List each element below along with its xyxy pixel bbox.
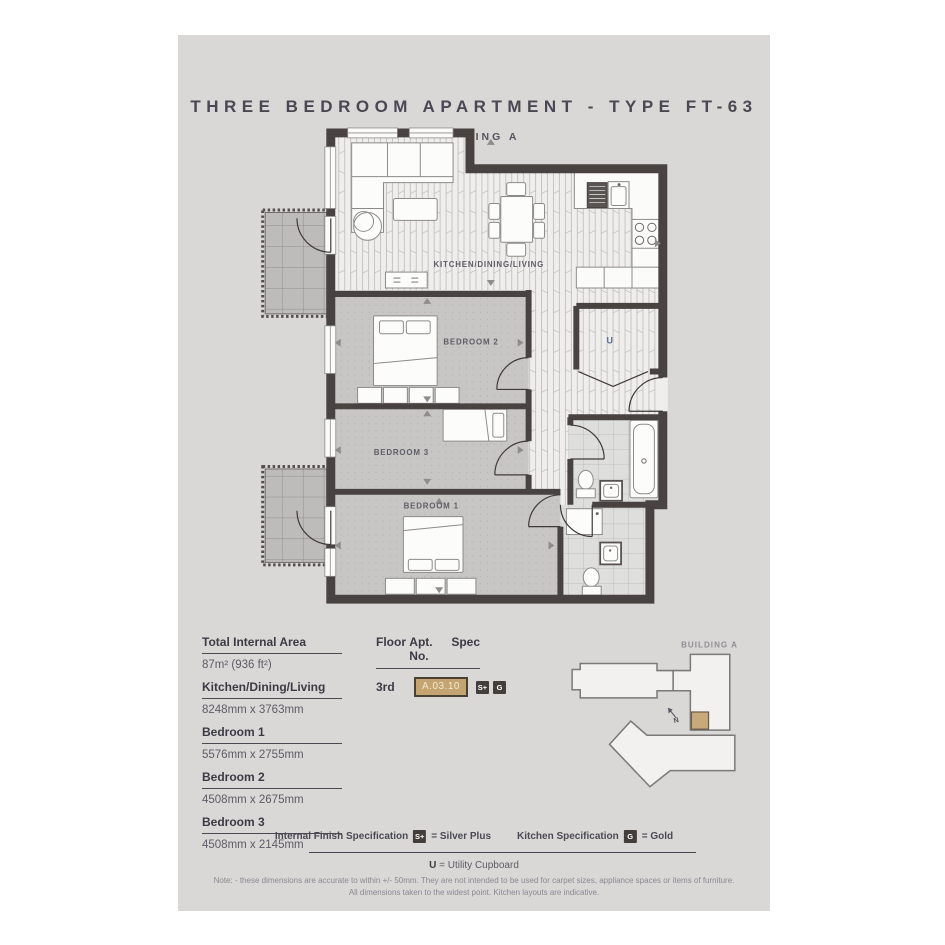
gold-badge: G: [624, 830, 637, 843]
floor-plan: KITCHEN/DINING/LIVING BEDROOM 2 BEDROOM …: [238, 121, 690, 628]
north-compass: N: [668, 708, 680, 725]
balcony-bottom: [263, 466, 330, 564]
kitchen-spec-label: Kitchen Specification: [517, 831, 619, 842]
utility-value: = Utility Cupboard: [436, 860, 519, 871]
armchair: [354, 211, 382, 240]
toilet: [578, 470, 593, 489]
floor-value: 3rd: [376, 680, 414, 694]
unit-table: Floor Apt. No. Spec 3rd A.03.10 S+ G: [376, 635, 510, 697]
dimension-value: 87m² (936 ft²): [202, 659, 342, 671]
tv-unit: [385, 272, 427, 288]
building-west-block: [572, 663, 673, 697]
dimension-row: Bedroom 1 5576mm x 2755mm: [202, 725, 342, 761]
dimension-label: Kitchen/Dining/Living: [202, 680, 342, 699]
dimension-value: 5576mm x 2755mm: [202, 749, 342, 761]
compass-n: N: [673, 717, 680, 725]
page-title: THREE BEDROOM APARTMENT - TYPE FT-63: [178, 97, 770, 117]
finish-spec-label: Internal Finish Specification: [275, 831, 408, 842]
spec-badge-gold: G: [493, 681, 506, 694]
floorplan-card: THREE BEDROOM APARTMENT - TYPE FT-63 BUI…: [178, 35, 770, 911]
legend-divider: [309, 852, 696, 853]
kitchen-spec-value: = Gold: [642, 831, 673, 842]
keyplan-buildings: [572, 654, 735, 786]
utility-legend: U = Utility Cupboard: [178, 860, 770, 871]
dimension-label: Bedroom 2: [202, 770, 342, 789]
dimension-label: Total Internal Area: [202, 635, 342, 654]
label-living: KITCHEN/DINING/LIVING: [434, 260, 545, 269]
dimensions-table: Total Internal Area 87m² (936 ft²) Kitch…: [202, 635, 342, 860]
coffee-table: [393, 199, 437, 221]
label-bedroom2: BEDROOM 2: [443, 338, 498, 347]
dimension-row: Kitchen/Dining/Living 8248mm x 3763mm: [202, 680, 342, 716]
label-utility: U: [607, 336, 614, 346]
page: THREE BEDROOM APARTMENT - TYPE FT-63 BUI…: [0, 0, 945, 945]
unit-table-row: 3rd A.03.10 S+ G: [376, 677, 510, 697]
spec-legend: Internal Finish Specification S+ = Silve…: [275, 830, 673, 843]
dimension-value: 4508mm x 2675mm: [202, 794, 342, 806]
disclaimer-note: Note: - these dimensions are accurate to…: [178, 875, 770, 898]
building-key-plan: BUILDING A N: [560, 627, 752, 799]
bedroom3-furniture: [443, 409, 507, 441]
balcony-top: [263, 210, 330, 316]
label-bedroom1: BEDROOM 1: [404, 502, 459, 511]
dimension-row: Bedroom 2 4508mm x 2675mm: [202, 770, 342, 806]
apt-no-badge: A.03.10: [414, 677, 468, 697]
keyplan-building-label: BUILDING A: [681, 640, 738, 649]
note-line-1: Note: - these dimensions are accurate to…: [178, 875, 770, 887]
apt-no-header: Apt. No.: [409, 635, 451, 663]
finish-spec-value: = Silver Plus: [431, 831, 491, 842]
note-line-2: All dimensions taken to the widest point…: [178, 887, 770, 899]
label-bedroom3: BEDROOM 3: [374, 448, 429, 457]
building-south-block: [610, 721, 735, 787]
ensuite-toilet: [583, 568, 599, 587]
floor-header: Floor: [376, 635, 409, 663]
spec-header: Spec: [451, 635, 480, 663]
dimension-label: Bedroom 1: [202, 725, 342, 744]
spec-badge-silver-plus: S+: [476, 681, 489, 694]
dimension-value: 8248mm x 3763mm: [202, 704, 342, 716]
unit-table-headers: Floor Apt. No. Spec: [376, 635, 480, 669]
silver-plus-badge: S+: [413, 830, 426, 843]
apartment-location-marker: [691, 712, 708, 729]
dimension-row: Total Internal Area 87m² (936 ft²): [202, 635, 342, 671]
